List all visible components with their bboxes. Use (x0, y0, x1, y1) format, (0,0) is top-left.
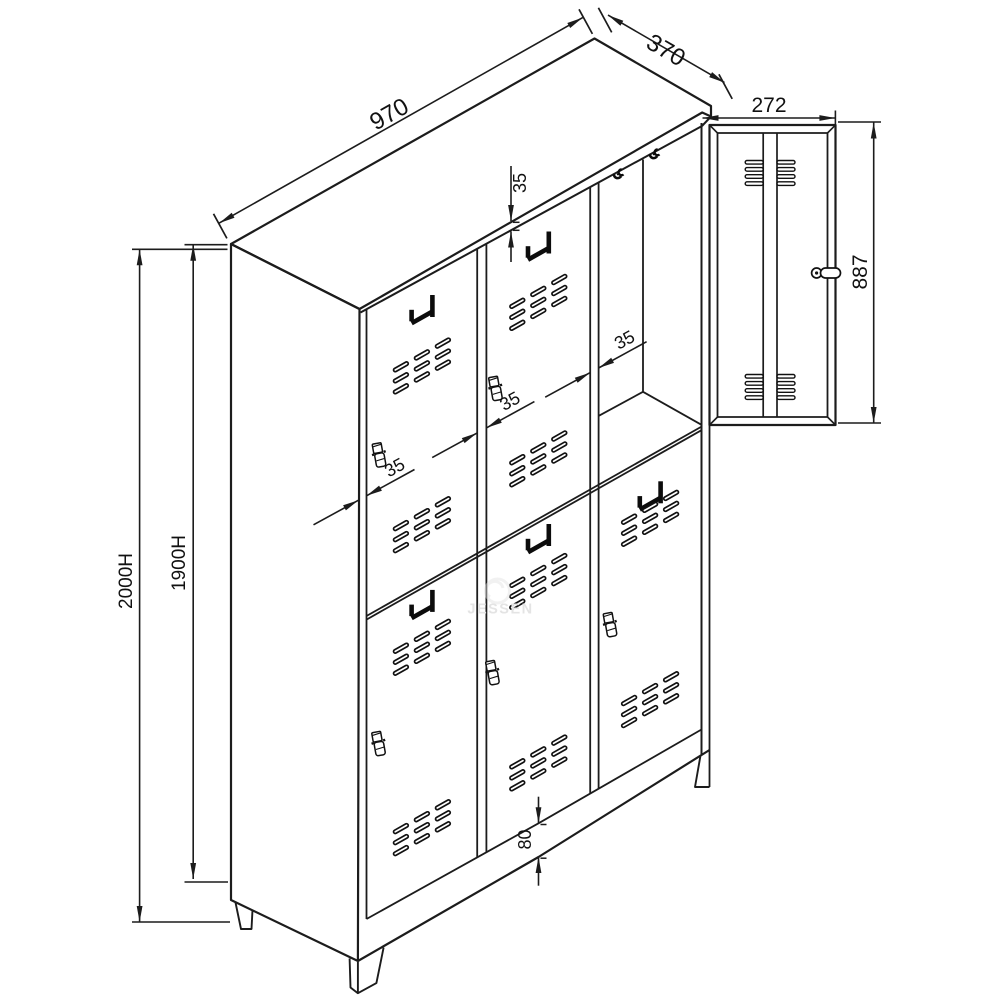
svg-text:1900H: 1900H (169, 535, 190, 591)
svg-text:2000H: 2000H (116, 553, 137, 609)
svg-text:887: 887 (849, 254, 872, 289)
svg-text:272: 272 (751, 94, 786, 117)
svg-text:80: 80 (515, 829, 535, 849)
svg-text:JESSEN: JESSEN (467, 602, 533, 618)
svg-text:35: 35 (510, 173, 530, 193)
